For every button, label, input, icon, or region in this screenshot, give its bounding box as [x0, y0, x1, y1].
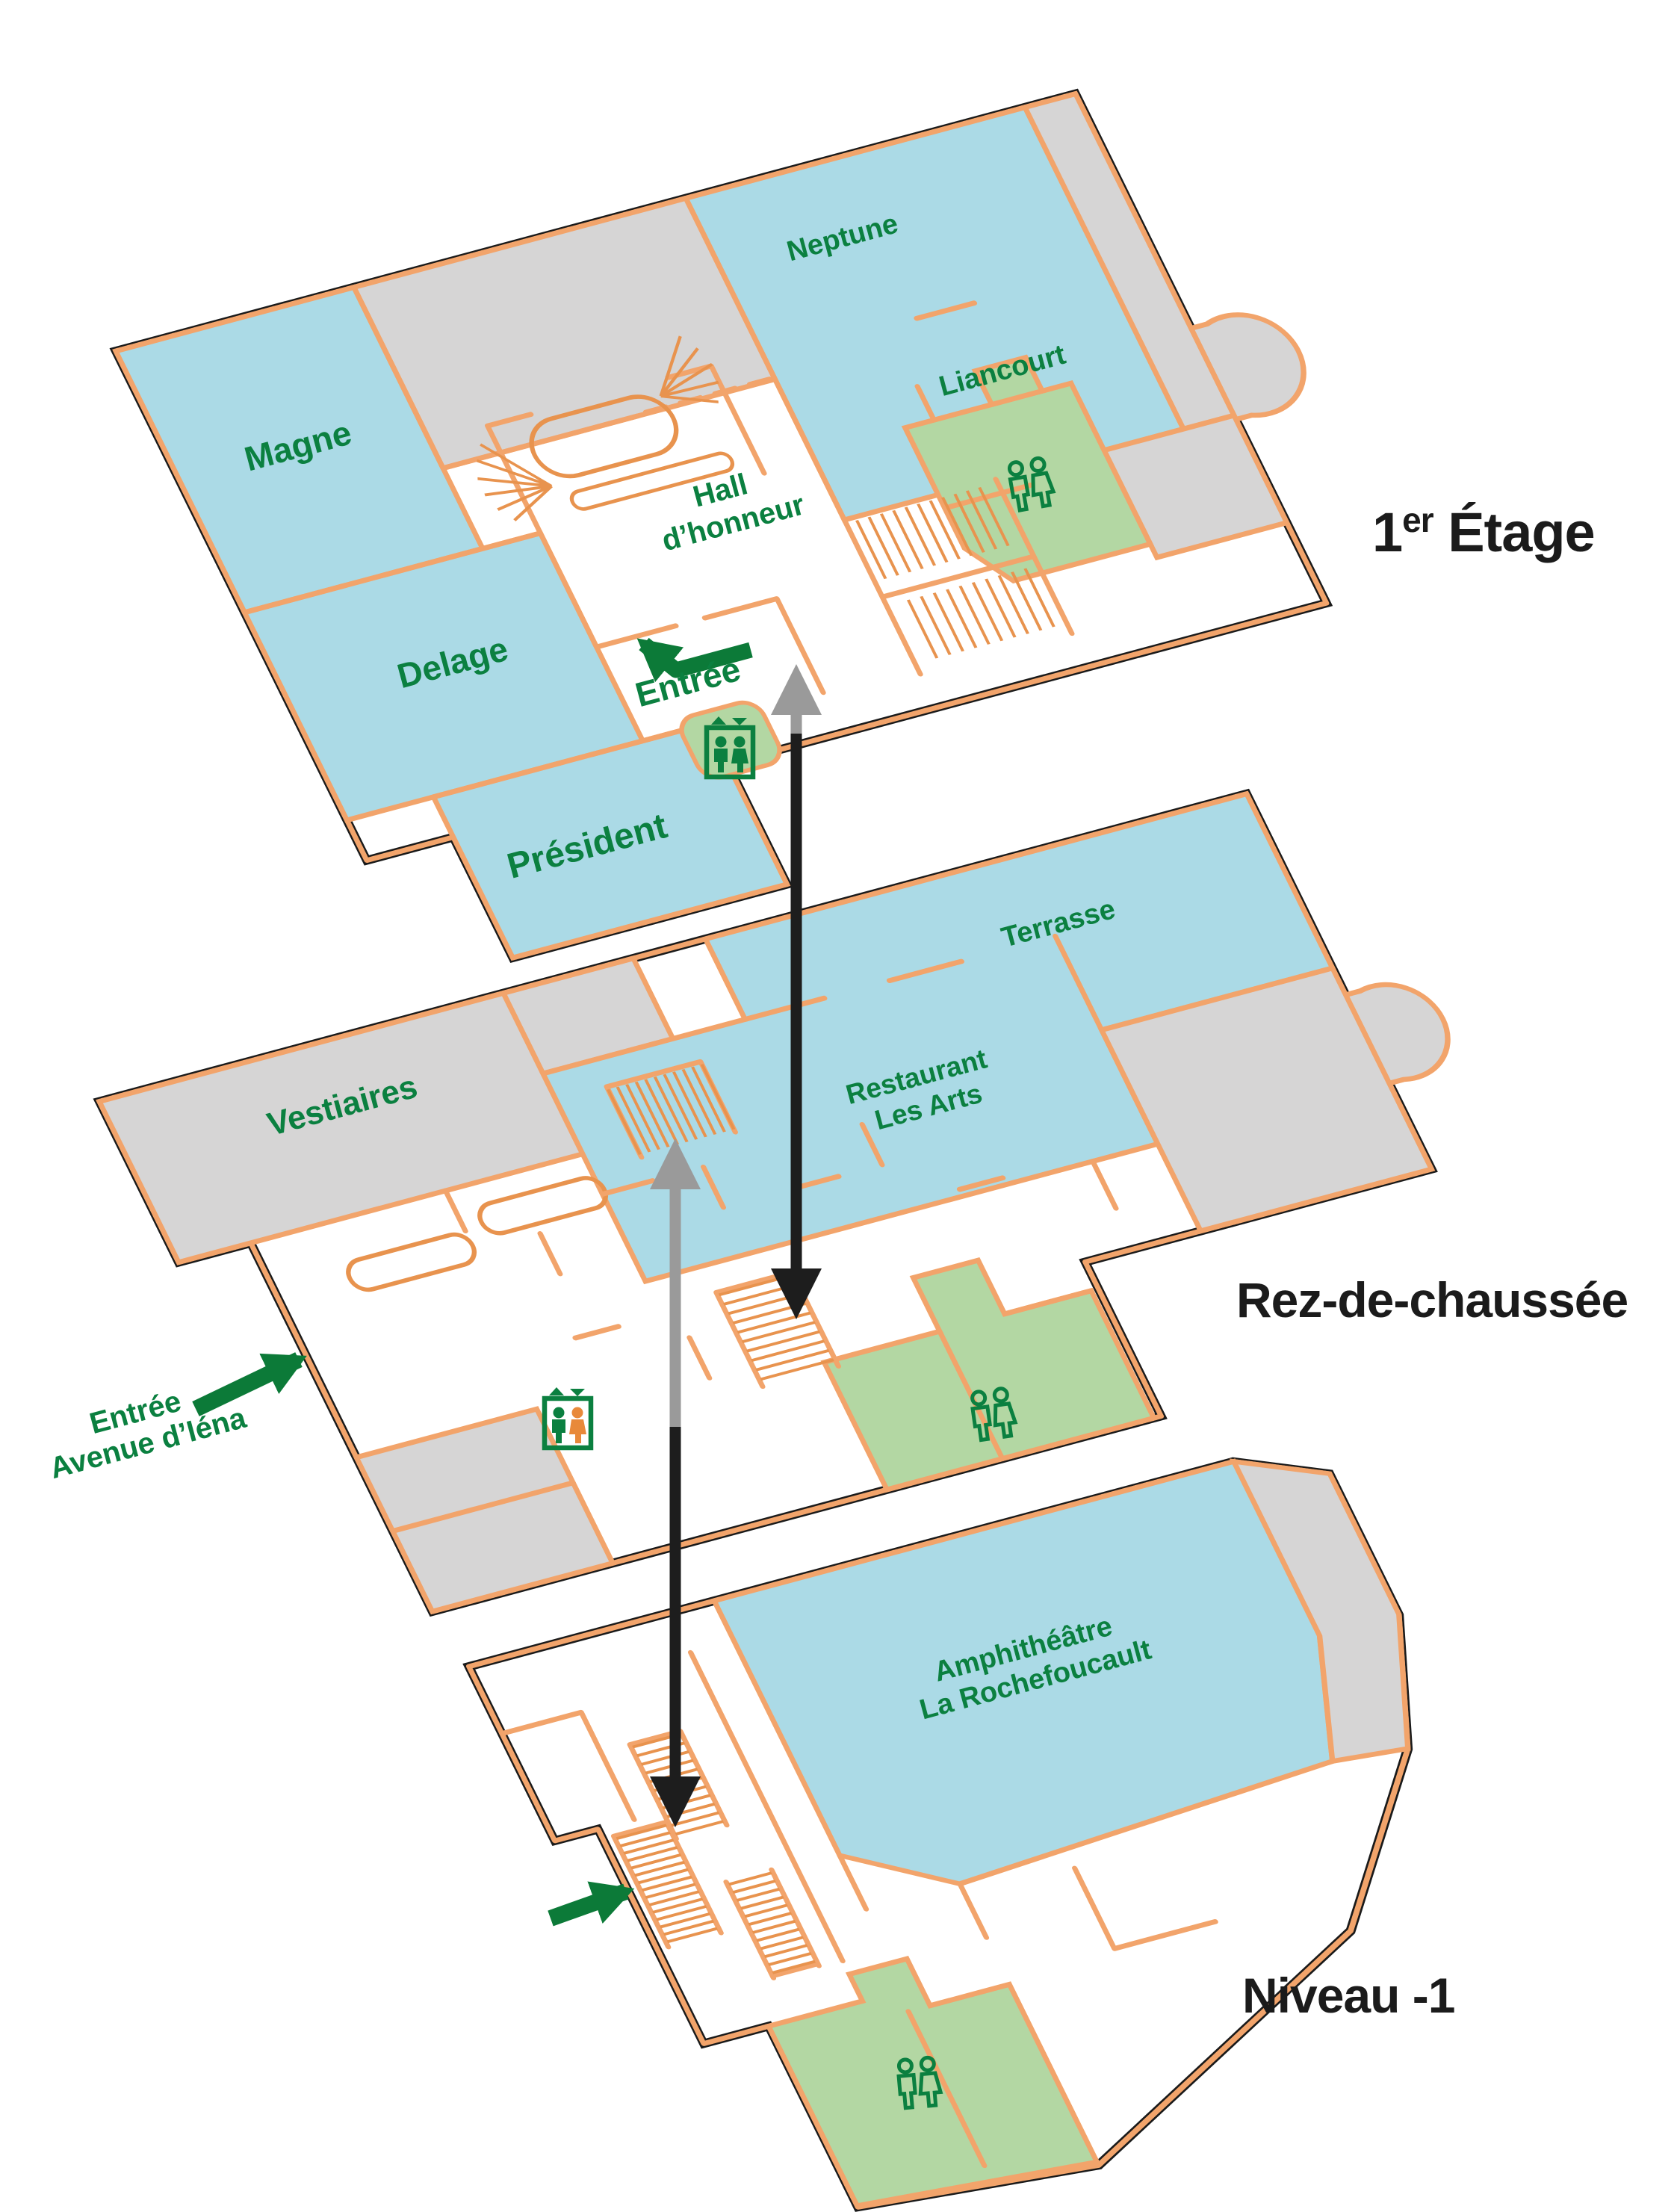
level-title-ground-floor: Rez-de-chaussée — [1236, 1272, 1628, 1327]
label-entree-avenue-iena: Entrée Avenue d’Iéna — [38, 1369, 250, 1485]
ground-floor-plan — [99, 774, 1583, 1631]
entrance-arrow-n1 — [551, 1892, 626, 1918]
level-title-f1-num: 1 — [1372, 501, 1402, 563]
level-title-first-floor: 1er Étage — [1372, 501, 1595, 563]
level-title-f1-rest: Étage — [1433, 501, 1595, 563]
entrance-arrow-rdc — [196, 1360, 299, 1409]
level-title-basement: Niveau -1 — [1242, 1968, 1454, 2023]
floorplan-page: Magne Neptune Liancourt Hall d’honneur D… — [0, 0, 1677, 2212]
level-title-f1-sup: er — [1402, 501, 1434, 539]
building-levels-map: Magne Neptune Liancourt Hall d’honneur D… — [0, 0, 1677, 2212]
